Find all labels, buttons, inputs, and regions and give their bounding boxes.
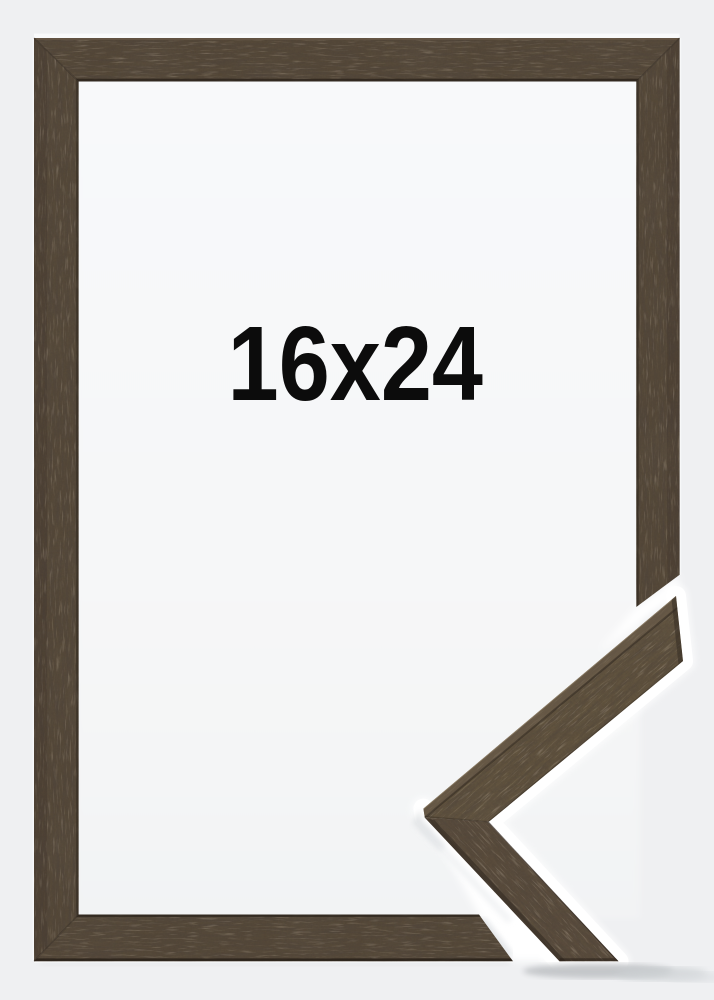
- svg-text:16x24: 16x24: [228, 305, 483, 424]
